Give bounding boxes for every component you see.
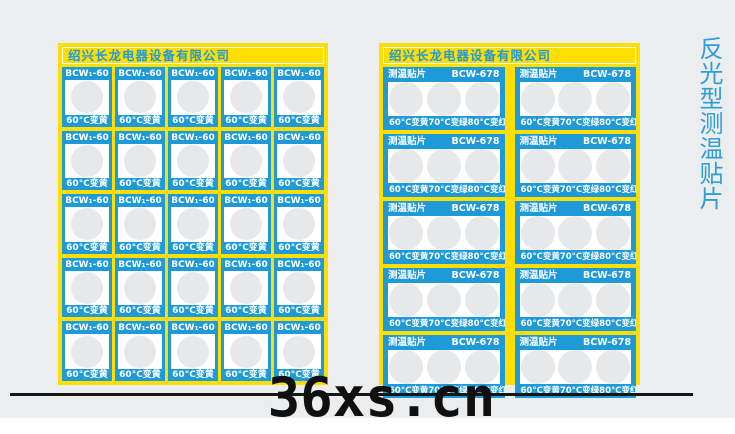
label-model: BCW₁-60 xyxy=(277,133,321,143)
label-caption-60: 60°C变黄 xyxy=(389,118,428,128)
label-title: 测温贴片 xyxy=(388,203,426,215)
label-caption: 60°C变黄 xyxy=(278,116,320,126)
label-caption: 60°C变黄 xyxy=(278,243,320,253)
indicator-dot xyxy=(283,336,315,368)
label-top-row: 测温贴片 BCW-678 xyxy=(520,270,632,282)
label-model: BCW-678 xyxy=(583,69,631,81)
label-model: BCW-678 xyxy=(451,69,499,81)
right-sheet-company-header: 绍兴长龙电器设备有限公司 xyxy=(383,47,636,64)
indicator-dot xyxy=(124,272,156,304)
temp-label-wide: 测温贴片 BCW-678 60°C变黄 70°C变绿 80°C变红 xyxy=(383,268,505,331)
indicator-dot xyxy=(71,336,103,368)
indicator-dot xyxy=(124,336,156,368)
label-model: BCW₁-60 xyxy=(224,133,268,143)
label-caption-row: 60°C变黄 70°C变绿 80°C变红 xyxy=(388,185,500,195)
label-model: BCW₁-60 xyxy=(224,323,268,333)
label-caption-80: 80°C变红 xyxy=(468,252,505,262)
label-model: BCW₁-60 xyxy=(65,69,109,79)
label-model: BCW₁-60 xyxy=(171,323,215,333)
indicator-window xyxy=(277,271,321,306)
label-caption: 60°C变黄 xyxy=(66,243,108,253)
indicator-window xyxy=(388,149,500,183)
indicator-dot xyxy=(230,145,262,177)
indicator-dot xyxy=(71,272,103,304)
label-title: 测温贴片 xyxy=(388,337,426,349)
label-model: BCW₁-60 xyxy=(65,323,109,333)
indicator-window xyxy=(277,144,321,179)
temp-label-small: BCW₁-60 60°C变黄 xyxy=(115,67,165,127)
label-caption-row: 60°C变黄 70°C变绿 80°C变红 xyxy=(520,252,632,262)
indicator-dot xyxy=(427,149,461,183)
indicator-dot xyxy=(427,216,461,250)
label-caption-70: 70°C变绿 xyxy=(428,118,467,128)
temp-label-wide: 测温贴片 BCW-678 60°C变黄 70°C变绿 80°C变红 xyxy=(383,134,505,197)
label-caption-80: 80°C变红 xyxy=(599,319,636,329)
indicator-window xyxy=(65,80,109,115)
indicator-dot xyxy=(230,81,262,113)
indicator-window xyxy=(224,80,268,115)
temp-label-small: BCW₁-60 60°C变黄 xyxy=(115,258,165,318)
indicator-dot xyxy=(596,216,630,250)
label-caption-row: 60°C变黄 70°C变绿 80°C变红 xyxy=(520,118,632,128)
label-caption: 60°C变黄 xyxy=(172,306,214,316)
indicator-window xyxy=(65,144,109,179)
indicator-dot xyxy=(124,208,156,240)
label-caption: 60°C变黄 xyxy=(278,306,320,316)
label-model: BCW₁-60 xyxy=(224,196,268,206)
label-top-row: 测温贴片 BCW-678 xyxy=(520,136,632,148)
label-caption-70: 70°C变绿 xyxy=(560,319,599,329)
indicator-dot xyxy=(283,272,315,304)
label-title: 测温贴片 xyxy=(520,337,558,349)
label-model: BCW-678 xyxy=(451,270,499,282)
temp-label-wide: 测温贴片 BCW-678 60°C变黄 70°C变绿 80°C变红 xyxy=(515,67,637,130)
indicator-dot xyxy=(124,81,156,113)
indicator-window xyxy=(277,334,321,369)
left-sheet: 绍兴长龙电器设备有限公司 BCW₁-60 60°C变黄 BCW₁-60 60°C… xyxy=(58,43,328,385)
label-model: BCW-678 xyxy=(583,136,631,148)
temp-label-small: BCW₁-60 60°C变黄 xyxy=(62,194,112,254)
label-model: BCW₁-60 xyxy=(65,260,109,270)
indicator-window xyxy=(277,80,321,115)
label-caption-60: 60°C变黄 xyxy=(521,319,560,329)
label-caption: 60°C变黄 xyxy=(119,116,161,126)
label-title: 测温贴片 xyxy=(520,270,558,282)
label-caption-80: 80°C变红 xyxy=(468,319,505,329)
label-caption-70: 70°C变绿 xyxy=(560,185,599,195)
label-model: BCW-678 xyxy=(583,337,631,349)
indicator-dot xyxy=(71,145,103,177)
indicator-window xyxy=(388,216,500,250)
label-title: 测温贴片 xyxy=(388,69,426,81)
indicator-dot xyxy=(177,272,209,304)
indicator-dot xyxy=(521,283,555,317)
label-caption-row: 60°C变黄 70°C变绿 80°C变红 xyxy=(520,185,632,195)
indicator-window xyxy=(277,207,321,242)
label-caption-80: 80°C变红 xyxy=(468,118,505,128)
indicator-dot xyxy=(427,283,461,317)
indicator-window xyxy=(520,283,632,317)
label-caption-60: 60°C变黄 xyxy=(521,185,560,195)
temp-label-small: BCW₁-60 60°C变黄 xyxy=(274,258,324,318)
temp-label-small: BCW₁-60 60°C变黄 xyxy=(274,194,324,254)
watermark-text: 36xs.cn xyxy=(14,371,735,425)
indicator-dot xyxy=(558,149,592,183)
indicator-dot xyxy=(177,81,209,113)
temp-label-small: BCW₁-60 60°C变黄 xyxy=(168,194,218,254)
indicator-window xyxy=(520,82,632,116)
label-model: BCW₁-60 xyxy=(171,133,215,143)
label-caption: 60°C变黄 xyxy=(225,243,267,253)
temp-label-small: BCW₁-60 60°C变黄 xyxy=(168,258,218,318)
label-model: BCW₁-60 xyxy=(171,260,215,270)
temp-label-small: BCW₁-60 60°C变黄 xyxy=(221,258,271,318)
indicator-dot xyxy=(71,208,103,240)
temp-label-small: BCW₁-60 60°C变黄 xyxy=(168,67,218,127)
label-model: BCW₁-60 xyxy=(65,133,109,143)
indicator-window xyxy=(65,334,109,369)
indicator-dot xyxy=(427,82,461,116)
indicator-dot xyxy=(596,149,630,183)
label-caption-70: 70°C变绿 xyxy=(560,252,599,262)
indicator-window xyxy=(118,207,162,242)
label-top-row: 测温贴片 BCW-678 xyxy=(388,69,500,81)
side-title: 反光型测温贴片 xyxy=(692,36,727,211)
label-model: BCW₁-60 xyxy=(277,323,321,333)
indicator-dot xyxy=(283,81,315,113)
indicator-window xyxy=(65,207,109,242)
indicator-window xyxy=(171,334,215,369)
indicator-window xyxy=(171,80,215,115)
indicator-window xyxy=(224,144,268,179)
label-caption: 60°C变黄 xyxy=(119,306,161,316)
label-title: 测温贴片 xyxy=(388,136,426,148)
label-top-row: 测温贴片 BCW-678 xyxy=(388,337,500,349)
temp-label-small: BCW₁-60 60°C变黄 xyxy=(62,131,112,191)
indicator-window xyxy=(520,216,632,250)
temp-label-small: BCW₁-60 60°C变黄 xyxy=(221,194,271,254)
indicator-dot xyxy=(230,208,262,240)
temp-label-small: BCW₁-60 60°C变黄 xyxy=(62,67,112,127)
label-caption-row: 60°C变黄 70°C变绿 80°C变红 xyxy=(520,319,632,329)
temp-label-small: BCW₁-60 60°C变黄 xyxy=(115,131,165,191)
indicator-window xyxy=(224,334,268,369)
label-caption: 60°C变黄 xyxy=(66,116,108,126)
label-caption-row: 60°C变黄 70°C变绿 80°C变红 xyxy=(388,118,500,128)
indicator-dot xyxy=(465,149,499,183)
indicator-window xyxy=(520,149,632,183)
label-caption: 60°C变黄 xyxy=(172,243,214,253)
label-caption-80: 80°C变红 xyxy=(599,118,636,128)
indicator-window xyxy=(388,82,500,116)
label-caption-70: 70°C变绿 xyxy=(560,118,599,128)
label-caption: 60°C变黄 xyxy=(225,306,267,316)
indicator-dot xyxy=(558,216,592,250)
indicator-dot xyxy=(465,82,499,116)
indicator-dot xyxy=(521,82,555,116)
temp-label-small: BCW₁-60 60°C变黄 xyxy=(62,258,112,318)
indicator-dot xyxy=(389,216,423,250)
label-caption: 60°C变黄 xyxy=(66,179,108,189)
indicator-window xyxy=(118,80,162,115)
indicator-window xyxy=(65,271,109,306)
label-caption: 60°C变黄 xyxy=(119,243,161,253)
indicator-dot xyxy=(521,216,555,250)
temp-label-small: BCW₁-60 60°C变黄 xyxy=(168,131,218,191)
label-model: BCW₁-60 xyxy=(277,260,321,270)
indicator-dot xyxy=(230,336,262,368)
indicator-window xyxy=(224,207,268,242)
indicator-window xyxy=(118,334,162,369)
indicator-dot xyxy=(389,283,423,317)
label-top-row: 测温贴片 BCW-678 xyxy=(520,203,632,215)
temp-label-small: BCW₁-60 60°C变黄 xyxy=(221,67,271,127)
label-caption-60: 60°C变黄 xyxy=(389,185,428,195)
label-caption-70: 70°C变绿 xyxy=(428,319,467,329)
indicator-dot xyxy=(389,149,423,183)
indicator-window xyxy=(171,144,215,179)
label-top-row: 测温贴片 BCW-678 xyxy=(520,69,632,81)
label-top-row: 测温贴片 BCW-678 xyxy=(388,270,500,282)
label-caption-row: 60°C变黄 70°C变绿 80°C变红 xyxy=(388,319,500,329)
indicator-window xyxy=(171,271,215,306)
indicator-dot xyxy=(283,208,315,240)
indicator-dot xyxy=(124,145,156,177)
label-model: BCW₁-60 xyxy=(277,69,321,79)
label-model: BCW₁-60 xyxy=(224,260,268,270)
indicator-dot xyxy=(558,283,592,317)
temp-label-small: BCW₁-60 60°C变黄 xyxy=(274,131,324,191)
indicator-dot xyxy=(230,272,262,304)
label-caption-60: 60°C变黄 xyxy=(389,252,428,262)
label-model: BCW₁-60 xyxy=(118,323,162,333)
label-top-row: 测温贴片 BCW-678 xyxy=(388,203,500,215)
temp-label-wide: 测温贴片 BCW-678 60°C变黄 70°C变绿 80°C变红 xyxy=(515,268,637,331)
label-model: BCW₁-60 xyxy=(118,133,162,143)
label-caption: 60°C变黄 xyxy=(172,179,214,189)
label-caption: 60°C变黄 xyxy=(119,179,161,189)
indicator-dot xyxy=(521,149,555,183)
label-model: BCW-678 xyxy=(583,203,631,215)
label-caption-70: 70°C变绿 xyxy=(428,252,467,262)
indicator-window xyxy=(171,207,215,242)
indicator-dot xyxy=(71,81,103,113)
label-caption: 60°C变黄 xyxy=(225,116,267,126)
label-caption: 60°C变黄 xyxy=(278,179,320,189)
temp-label-wide: 测温贴片 BCW-678 60°C变黄 70°C变绿 80°C变红 xyxy=(515,134,637,197)
label-title: 测温贴片 xyxy=(388,270,426,282)
label-model: BCW₁-60 xyxy=(224,69,268,79)
label-caption: 60°C变黄 xyxy=(172,116,214,126)
label-model: BCW-678 xyxy=(583,270,631,282)
label-title: 测温贴片 xyxy=(520,203,558,215)
label-title: 测温贴片 xyxy=(520,69,558,81)
label-caption-80: 80°C变红 xyxy=(599,185,636,195)
temp-label-small: BCW₁-60 60°C变黄 xyxy=(274,67,324,127)
label-caption-60: 60°C变黄 xyxy=(521,252,560,262)
temp-label-small: BCW₁-60 60°C变黄 xyxy=(221,131,271,191)
label-caption-80: 80°C变红 xyxy=(599,252,636,262)
label-model: BCW₁-60 xyxy=(171,69,215,79)
indicator-dot xyxy=(465,283,499,317)
indicator-window xyxy=(224,271,268,306)
indicator-window xyxy=(118,271,162,306)
label-model: BCW-678 xyxy=(451,136,499,148)
label-model: BCW₁-60 xyxy=(118,260,162,270)
indicator-dot xyxy=(283,145,315,177)
label-model: BCW₁-60 xyxy=(277,196,321,206)
label-caption: 60°C变黄 xyxy=(66,306,108,316)
indicator-dot xyxy=(558,82,592,116)
label-top-row: 测温贴片 BCW-678 xyxy=(388,136,500,148)
label-caption-70: 70°C变绿 xyxy=(428,185,467,195)
indicator-dot xyxy=(596,82,630,116)
indicator-dot xyxy=(177,208,209,240)
wide-label-grid: 测温贴片 BCW-678 60°C变黄 70°C变绿 80°C变红 测温贴片 B… xyxy=(383,67,636,398)
left-sheet-company-header: 绍兴长龙电器设备有限公司 xyxy=(62,47,324,64)
indicator-window xyxy=(118,144,162,179)
label-caption-60: 60°C变黄 xyxy=(389,319,428,329)
indicator-window xyxy=(388,283,500,317)
label-model: BCW₁-60 xyxy=(65,196,109,206)
label-model: BCW₁-60 xyxy=(118,69,162,79)
label-model: BCW₁-60 xyxy=(118,196,162,206)
right-sheet: 绍兴长龙电器设备有限公司 测温贴片 BCW-678 60°C变黄 70°C变绿 … xyxy=(379,43,640,385)
label-caption-80: 80°C变红 xyxy=(468,185,505,195)
small-label-grid: BCW₁-60 60°C变黄 BCW₁-60 60°C变黄 BCW₁-60 60… xyxy=(62,67,324,381)
label-caption-row: 60°C变黄 70°C变绿 80°C变红 xyxy=(388,252,500,262)
temp-label-wide: 测温贴片 BCW-678 60°C变黄 70°C变绿 80°C变红 xyxy=(383,201,505,264)
indicator-dot xyxy=(596,283,630,317)
indicator-dot xyxy=(177,336,209,368)
indicator-dot xyxy=(177,145,209,177)
label-model: BCW-678 xyxy=(451,337,499,349)
label-caption: 60°C变黄 xyxy=(225,179,267,189)
label-top-row: 测温贴片 BCW-678 xyxy=(520,337,632,349)
temp-label-small: BCW₁-60 60°C变黄 xyxy=(115,194,165,254)
label-model: BCW-678 xyxy=(451,203,499,215)
temp-label-wide: 测温贴片 BCW-678 60°C变黄 70°C变绿 80°C变红 xyxy=(383,67,505,130)
indicator-dot xyxy=(465,216,499,250)
label-title: 测温贴片 xyxy=(520,136,558,148)
label-caption-60: 60°C变黄 xyxy=(521,118,560,128)
label-model: BCW₁-60 xyxy=(171,196,215,206)
temp-label-wide: 测温贴片 BCW-678 60°C变黄 70°C变绿 80°C变红 xyxy=(515,201,637,264)
indicator-dot xyxy=(389,82,423,116)
